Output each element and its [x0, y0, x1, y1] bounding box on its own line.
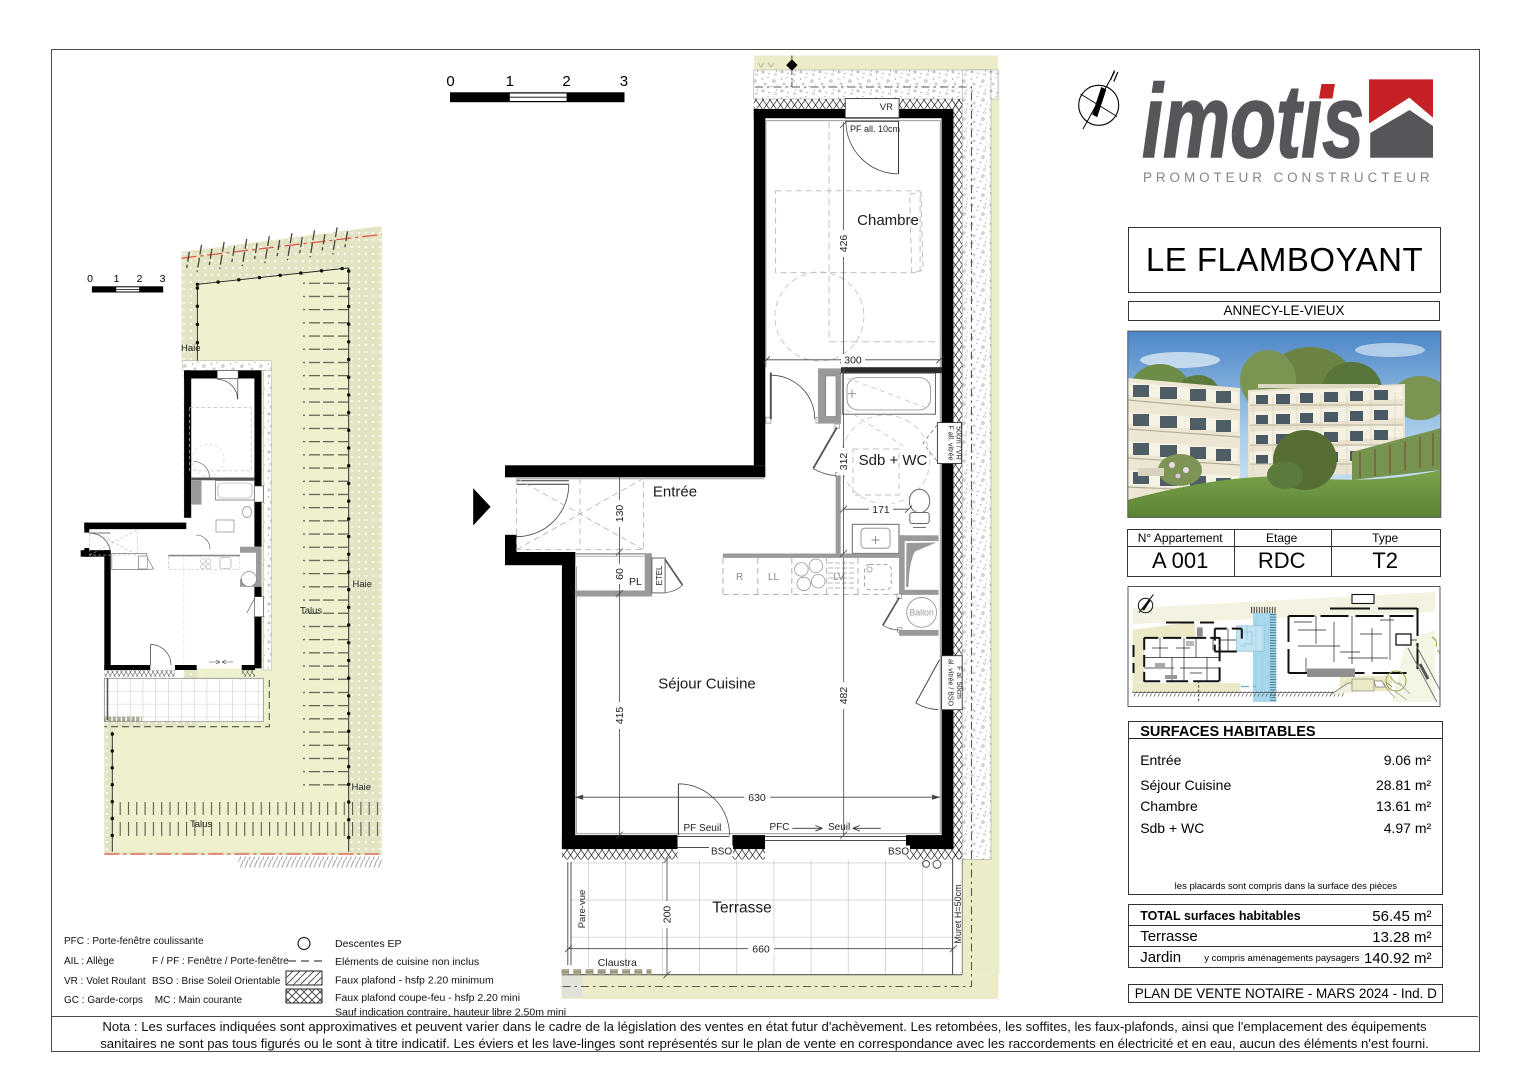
- svg-text:630: 630: [748, 792, 766, 804]
- svg-text:Entrée: Entrée: [653, 484, 697, 501]
- svg-text:F al. 50cm: F al. 50cm: [955, 666, 962, 699]
- svg-text:415: 415: [614, 707, 626, 725]
- svg-text:VR: VR: [880, 102, 893, 113]
- svg-text:Pare-vue: Pare-vue: [577, 890, 588, 929]
- svg-text:PROMOTEUR CONSTRUCTEUR: PROMOTEUR CONSTRUCTEUR: [1143, 170, 1434, 185]
- svg-text:Haie: Haie: [181, 343, 201, 354]
- svg-text:Sdb + WC: Sdb + WC: [859, 452, 928, 469]
- svg-text:Sauf indication contraire, hau: Sauf indication contraire, hauteur libre…: [335, 1007, 566, 1019]
- svg-text:482: 482: [838, 687, 850, 705]
- svg-text:130: 130: [614, 505, 626, 523]
- svg-text:LL: LL: [768, 572, 780, 583]
- svg-text:LV: LV: [833, 572, 845, 583]
- svg-text:BSO: BSO: [888, 847, 909, 858]
- svg-text:BSO: BSO: [711, 847, 732, 858]
- svg-text:PF Seuil: PF Seuil: [684, 823, 722, 834]
- svg-text:50cm / VR: 50cm / VR: [955, 426, 964, 460]
- svg-text:Talus: Talus: [190, 819, 212, 830]
- svg-text:Eléments de cuisine non inclus: Eléments de cuisine non inclus: [335, 956, 479, 968]
- svg-text:426: 426: [838, 235, 850, 253]
- svg-text:2: 2: [562, 73, 570, 90]
- svg-text:200: 200: [662, 906, 674, 924]
- svg-text:Descentes EP: Descentes EP: [335, 938, 402, 950]
- svg-text:al. vitrée / BSO: al. vitrée / BSO: [947, 659, 954, 707]
- svg-text:3: 3: [160, 273, 166, 285]
- svg-text:Terrasse: Terrasse: [712, 900, 771, 917]
- svg-text:660: 660: [752, 944, 770, 956]
- svg-text:PF all. 10cm: PF all. 10cm: [850, 124, 900, 134]
- svg-text:171: 171: [872, 504, 890, 516]
- svg-text:F all. vitrée: F all. vitrée: [947, 425, 956, 460]
- svg-text:ETEL: ETEL: [655, 565, 664, 586]
- svg-text:Faux plafond coupe-feu - hsfp: Faux plafond coupe-feu - hsfp 2.20 mini: [335, 992, 520, 1004]
- svg-text:0: 0: [87, 273, 93, 285]
- svg-text:PFC: PFC: [770, 822, 790, 833]
- svg-text:0: 0: [446, 73, 454, 90]
- svg-text:PL: PL: [629, 576, 642, 588]
- svg-text:312: 312: [838, 453, 850, 471]
- svg-text:60: 60: [614, 568, 626, 580]
- svg-text:R: R: [736, 572, 743, 583]
- svg-text:300: 300: [844, 355, 862, 367]
- svg-text:Haie: Haie: [352, 782, 372, 793]
- svg-text:Ballon: Ballon: [909, 608, 934, 618]
- svg-text:2: 2: [137, 273, 143, 285]
- svg-text:Haie: Haie: [353, 579, 373, 590]
- svg-text:Chambre: Chambre: [857, 212, 919, 229]
- svg-text:1: 1: [506, 73, 514, 90]
- svg-text:Muret H=50cm: Muret H=50cm: [953, 884, 963, 943]
- svg-text:3: 3: [620, 73, 628, 90]
- svg-text:1: 1: [114, 273, 120, 285]
- svg-text:Talus: Talus: [300, 606, 322, 617]
- svg-text:Faux plafond - hsfp 2.20 minim: Faux plafond - hsfp 2.20 minimum: [335, 975, 494, 987]
- svg-text:Séjour Cuisine: Séjour Cuisine: [658, 676, 756, 693]
